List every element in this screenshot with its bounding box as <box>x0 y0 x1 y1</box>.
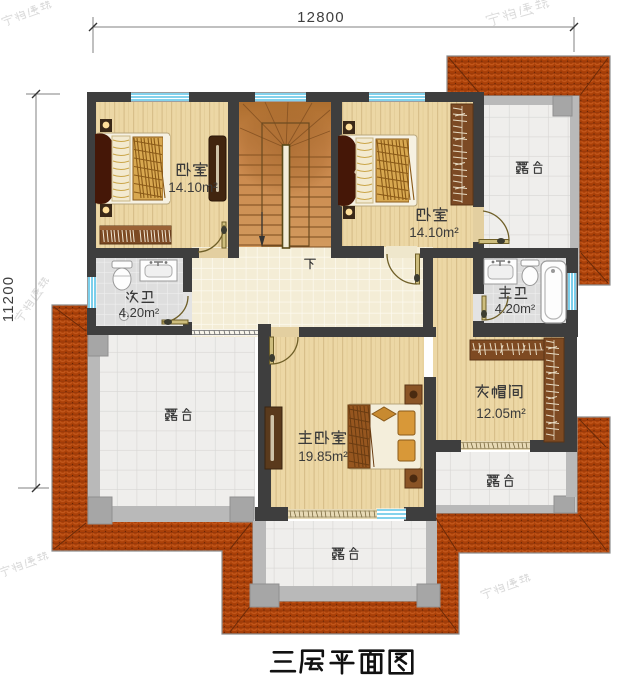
svg-text:12800: 12800 <box>297 9 345 26</box>
svg-text:19.85m²: 19.85m² <box>298 449 348 464</box>
svg-text:14.10m²: 14.10m² <box>168 180 218 195</box>
svg-text:4.20m²: 4.20m² <box>495 301 536 316</box>
svg-text:11200: 11200 <box>0 276 17 323</box>
svg-text:14.10m²: 14.10m² <box>409 225 459 240</box>
svg-text:12.05m²: 12.05m² <box>476 406 526 421</box>
svg-text:4.20m²: 4.20m² <box>119 305 160 320</box>
